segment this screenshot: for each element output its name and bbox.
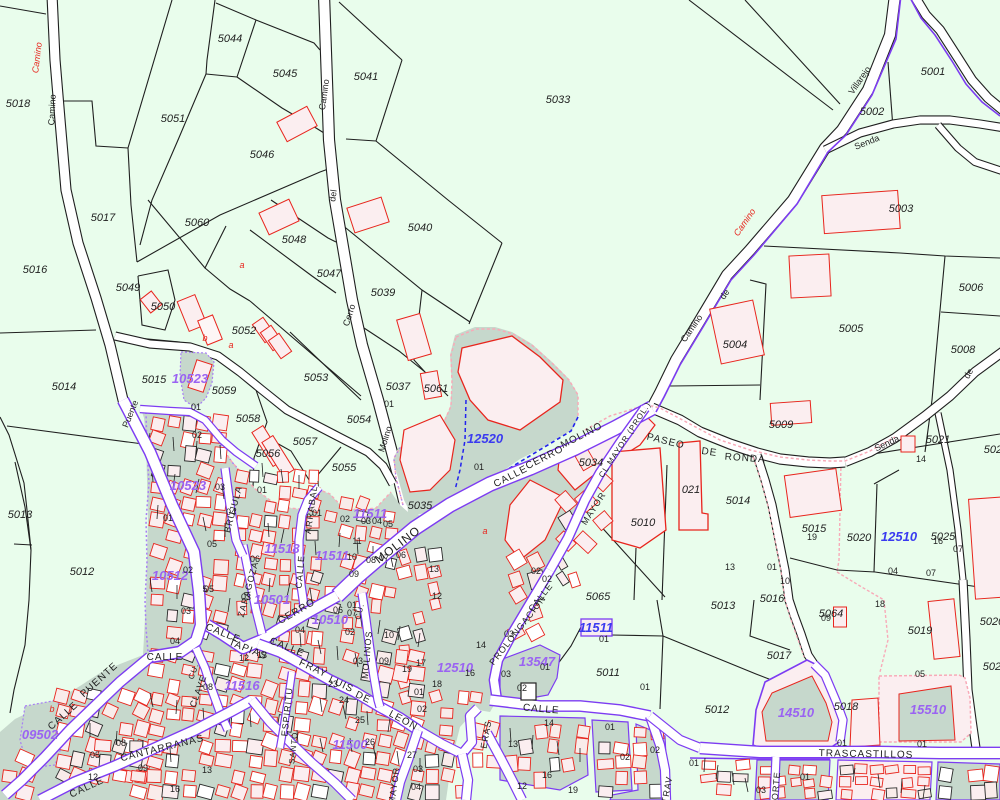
svg-text:09: 09 xyxy=(821,613,831,623)
svg-text:CALLE: CALLE xyxy=(147,652,184,663)
svg-text:01: 01 xyxy=(605,722,615,732)
svg-text:09: 09 xyxy=(349,569,359,579)
svg-text:5052: 5052 xyxy=(232,325,256,337)
svg-text:5034: 5034 xyxy=(579,457,603,469)
svg-text:5048: 5048 xyxy=(282,234,307,246)
svg-text:19: 19 xyxy=(807,532,817,542)
svg-text:07: 07 xyxy=(379,553,389,563)
svg-text:16: 16 xyxy=(933,536,943,546)
svg-text:13: 13 xyxy=(429,564,439,574)
svg-text:01: 01 xyxy=(163,513,173,523)
svg-text:del: del xyxy=(327,189,339,202)
svg-text:5054: 5054 xyxy=(347,414,371,426)
svg-text:02: 02 xyxy=(183,565,193,575)
svg-text:5013: 5013 xyxy=(8,509,33,521)
svg-text:a: a xyxy=(228,340,233,350)
svg-text:01: 01 xyxy=(474,462,484,472)
svg-text:03: 03 xyxy=(361,516,371,526)
svg-text:01: 01 xyxy=(191,402,201,412)
svg-text:5: 5 xyxy=(202,584,207,594)
svg-text:5009: 5009 xyxy=(769,419,793,431)
svg-text:02: 02 xyxy=(542,574,552,584)
svg-text:5017: 5017 xyxy=(91,212,116,224)
svg-text:14: 14 xyxy=(916,454,926,464)
svg-text:01: 01 xyxy=(414,687,424,697)
svg-text:16: 16 xyxy=(465,668,475,678)
svg-text:07: 07 xyxy=(953,544,963,554)
svg-text:11: 11 xyxy=(352,536,361,546)
svg-text:04: 04 xyxy=(295,625,305,635)
svg-text:02: 02 xyxy=(340,514,350,524)
svg-text:04: 04 xyxy=(888,566,898,576)
svg-text:5056: 5056 xyxy=(256,448,281,460)
svg-text:5003: 5003 xyxy=(889,203,914,215)
svg-text:5065: 5065 xyxy=(586,591,611,603)
svg-text:01: 01 xyxy=(347,600,357,610)
svg-text:02: 02 xyxy=(650,745,660,755)
svg-text:021: 021 xyxy=(682,484,700,496)
svg-text:5060: 5060 xyxy=(185,217,210,229)
svg-text:5020: 5020 xyxy=(847,532,872,544)
svg-text:06: 06 xyxy=(333,605,343,615)
svg-text:5041: 5041 xyxy=(354,71,378,83)
svg-text:18: 18 xyxy=(875,599,885,609)
svg-text:01: 01 xyxy=(312,508,322,518)
svg-text:08: 08 xyxy=(203,682,213,692)
svg-text:02: 02 xyxy=(192,430,202,440)
svg-text:16: 16 xyxy=(170,784,180,794)
svg-text:17: 17 xyxy=(416,658,426,668)
svg-text:13: 13 xyxy=(508,739,518,749)
svg-text:02: 02 xyxy=(417,704,427,714)
svg-text:5017: 5017 xyxy=(767,650,792,662)
svg-text:04: 04 xyxy=(411,782,421,792)
svg-text:27: 27 xyxy=(407,750,417,760)
svg-text:5044: 5044 xyxy=(218,33,242,45)
svg-text:02: 02 xyxy=(531,566,541,576)
svg-text:06: 06 xyxy=(396,550,406,560)
svg-text:04: 04 xyxy=(226,507,236,517)
svg-text:01: 01 xyxy=(599,634,609,644)
svg-text:5002: 5002 xyxy=(860,106,884,118)
svg-text:05: 05 xyxy=(383,519,393,529)
svg-text:09: 09 xyxy=(138,763,148,773)
svg-text:12: 12 xyxy=(517,781,527,791)
svg-text:10510: 10510 xyxy=(312,612,349,627)
svg-text:11518: 11518 xyxy=(264,541,300,556)
svg-text:05: 05 xyxy=(207,539,217,549)
svg-text:12: 12 xyxy=(88,772,98,782)
svg-text:02: 02 xyxy=(345,627,355,637)
svg-text:09: 09 xyxy=(379,656,389,666)
svg-text:10: 10 xyxy=(347,552,357,562)
svg-text:5050: 5050 xyxy=(151,301,176,313)
svg-text:24: 24 xyxy=(339,695,349,705)
svg-text:5020: 5020 xyxy=(980,616,1000,628)
svg-text:5047: 5047 xyxy=(317,268,342,280)
svg-text:13547: 13547 xyxy=(519,654,556,669)
svg-text:10501: 10501 xyxy=(254,592,290,607)
svg-text:5016: 5016 xyxy=(760,593,785,605)
svg-text:5033: 5033 xyxy=(546,94,571,106)
svg-text:5059: 5059 xyxy=(212,385,236,397)
svg-text:11511: 11511 xyxy=(315,548,349,563)
svg-text:DE: DE xyxy=(701,446,718,459)
svg-text:03: 03 xyxy=(501,669,511,679)
svg-text:5004: 5004 xyxy=(723,339,747,351)
svg-text:5006: 5006 xyxy=(959,282,984,294)
svg-text:01: 01 xyxy=(800,772,810,782)
svg-text:5061: 5061 xyxy=(424,383,448,395)
svg-text:5008: 5008 xyxy=(951,344,976,356)
svg-text:b: b xyxy=(202,333,207,343)
svg-text:19: 19 xyxy=(568,785,578,795)
svg-text:5015: 5015 xyxy=(142,374,167,386)
svg-text:11516: 11516 xyxy=(224,678,260,693)
svg-text:5014: 5014 xyxy=(726,495,750,507)
svg-text:11511: 11511 xyxy=(579,620,613,635)
svg-text:13: 13 xyxy=(202,765,212,775)
svg-text:5005: 5005 xyxy=(839,323,864,335)
svg-text:14: 14 xyxy=(544,718,554,728)
svg-text:12510: 12510 xyxy=(881,529,918,544)
svg-text:a: a xyxy=(482,526,487,536)
svg-text:08: 08 xyxy=(116,738,126,748)
svg-text:01: 01 xyxy=(837,738,847,748)
svg-text:09502: 09502 xyxy=(22,727,59,742)
svg-text:TRASCASTILLOS: TRASCASTILLOS xyxy=(819,748,914,761)
svg-text:5037: 5037 xyxy=(386,381,411,393)
svg-text:04: 04 xyxy=(170,636,180,646)
svg-text:01: 01 xyxy=(640,682,650,692)
svg-text:07: 07 xyxy=(926,568,936,578)
svg-text:25: 25 xyxy=(355,715,365,725)
svg-text:5018: 5018 xyxy=(834,701,859,713)
svg-text:15510: 15510 xyxy=(910,702,947,717)
svg-text:01: 01 xyxy=(384,399,394,409)
svg-text:02: 02 xyxy=(517,683,527,693)
svg-text:01: 01 xyxy=(257,485,267,495)
svg-text:05: 05 xyxy=(90,750,100,760)
svg-text:5058: 5058 xyxy=(236,413,261,425)
svg-text:5018: 5018 xyxy=(6,98,31,110)
svg-text:5014: 5014 xyxy=(52,381,76,393)
svg-text:03: 03 xyxy=(241,592,251,602)
svg-text:03: 03 xyxy=(756,785,766,795)
svg-text:5046: 5046 xyxy=(250,149,275,161)
svg-text:12: 12 xyxy=(239,653,249,663)
svg-text:03: 03 xyxy=(353,656,363,666)
svg-text:05: 05 xyxy=(915,669,925,679)
svg-text:01: 01 xyxy=(767,562,777,572)
svg-text:12520: 12520 xyxy=(467,431,504,446)
svg-text:5016: 5016 xyxy=(23,264,48,276)
svg-text:5039: 5039 xyxy=(371,287,395,299)
svg-text:5057: 5057 xyxy=(293,436,318,448)
svg-text:5010: 5010 xyxy=(631,517,656,529)
svg-text:b: b xyxy=(49,704,54,714)
svg-text:10: 10 xyxy=(384,630,394,640)
svg-text:23: 23 xyxy=(328,679,338,689)
svg-text:5053: 5053 xyxy=(304,372,329,384)
svg-text:5024: 5024 xyxy=(984,444,1000,456)
svg-text:13: 13 xyxy=(257,650,267,660)
svg-text:12: 12 xyxy=(432,591,442,601)
svg-text:03: 03 xyxy=(504,629,514,639)
svg-text:01: 01 xyxy=(917,739,927,749)
svg-text:16: 16 xyxy=(542,770,552,780)
svg-text:5055: 5055 xyxy=(332,462,357,474)
svg-text:5051: 5051 xyxy=(161,113,185,125)
svg-text:03: 03 xyxy=(413,764,423,774)
svg-text:01: 01 xyxy=(540,662,550,672)
svg-text:01: 01 xyxy=(689,758,699,768)
svg-text:02: 02 xyxy=(620,752,630,762)
svg-text:5021: 5021 xyxy=(926,434,950,446)
svg-text:5040: 5040 xyxy=(408,222,433,234)
svg-text:18: 18 xyxy=(432,679,442,689)
svg-text:5012: 5012 xyxy=(70,566,94,578)
svg-text:5026: 5026 xyxy=(983,661,1000,673)
svg-text:5019: 5019 xyxy=(908,625,932,637)
svg-text:26: 26 xyxy=(365,737,375,747)
svg-text:5011: 5011 xyxy=(596,667,620,679)
svg-text:10523: 10523 xyxy=(172,371,209,386)
svg-text:03: 03 xyxy=(181,606,191,616)
svg-text:10523: 10523 xyxy=(170,478,207,493)
svg-text:5035: 5035 xyxy=(408,500,433,512)
svg-text:11500: 11500 xyxy=(332,737,368,752)
svg-text:5012: 5012 xyxy=(705,704,729,716)
svg-text:5045: 5045 xyxy=(273,68,298,80)
svg-text:5049: 5049 xyxy=(116,282,140,294)
svg-text:14510: 14510 xyxy=(778,705,815,720)
svg-text:a: a xyxy=(239,260,244,270)
svg-text:08: 08 xyxy=(366,555,376,565)
svg-text:19: 19 xyxy=(402,664,412,674)
svg-text:06: 06 xyxy=(250,554,260,564)
svg-text:Camino: Camino xyxy=(46,94,58,125)
svg-text:14: 14 xyxy=(476,640,486,650)
svg-text:04: 04 xyxy=(372,516,382,526)
svg-text:5001: 5001 xyxy=(921,66,945,78)
svg-text:03: 03 xyxy=(215,482,225,492)
svg-text:5013: 5013 xyxy=(711,600,736,612)
svg-text:10: 10 xyxy=(780,576,790,586)
svg-text:13: 13 xyxy=(725,562,735,572)
